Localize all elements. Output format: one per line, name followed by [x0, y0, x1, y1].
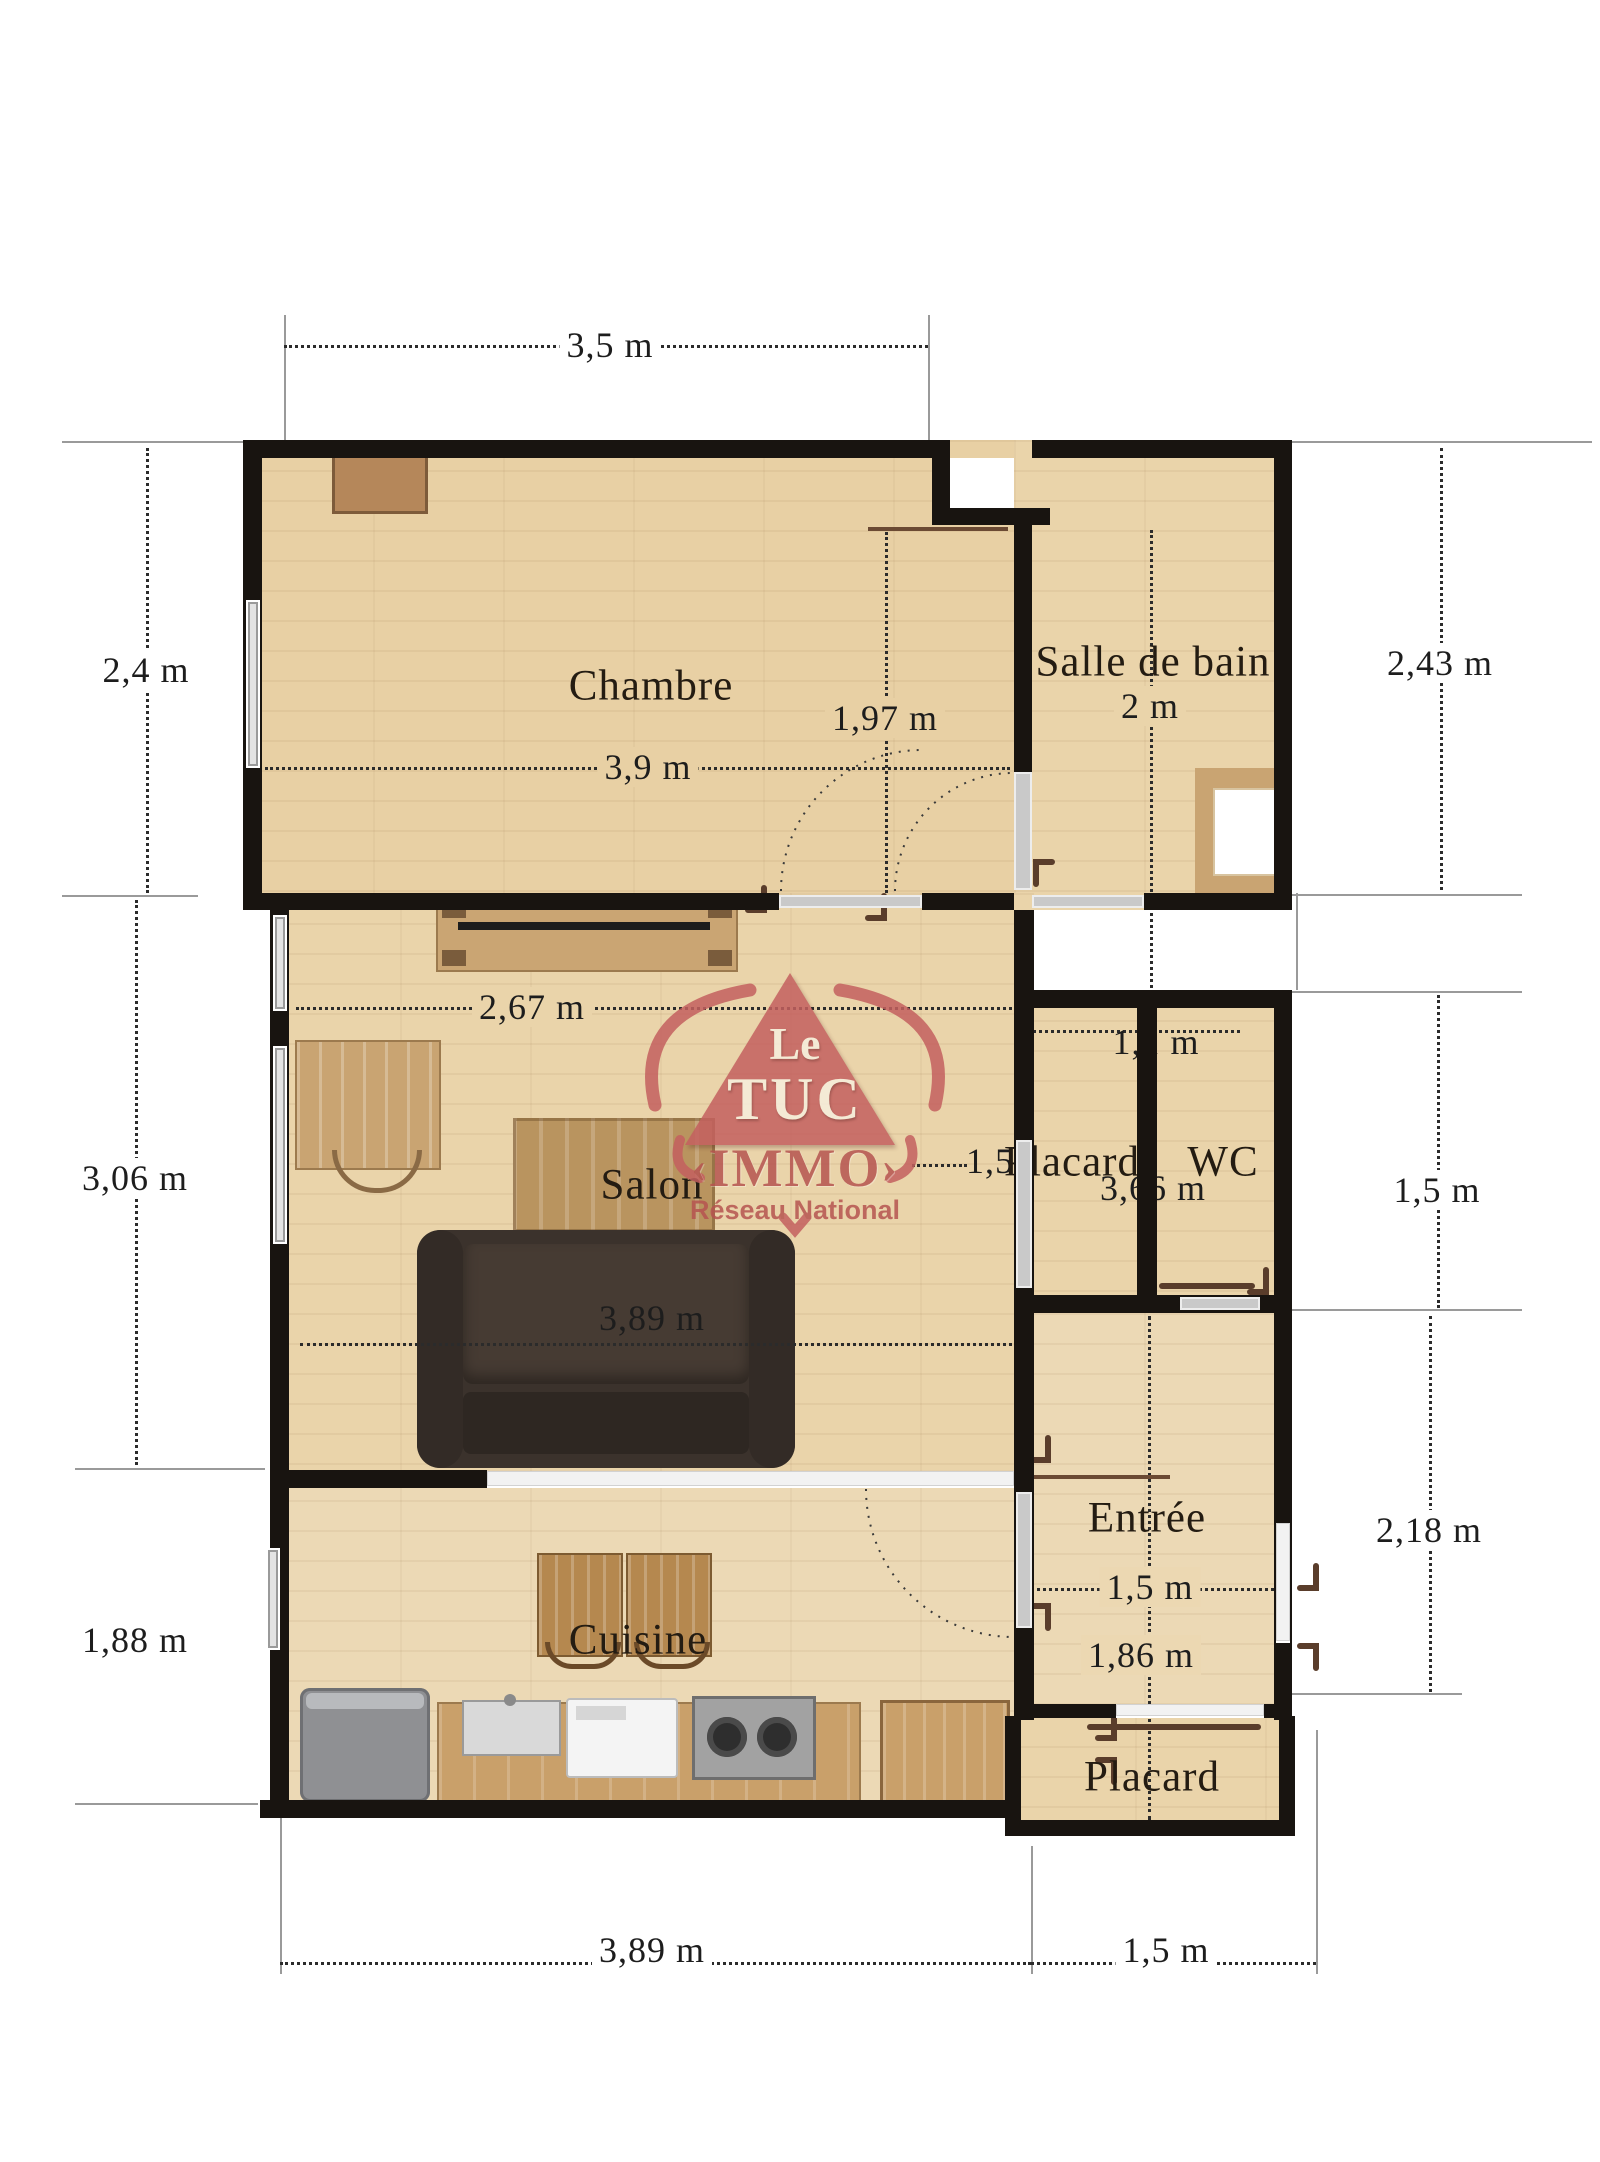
dim-line-wc-height-right	[1437, 995, 1440, 1308]
dim-bottom-left-width: 3,89 m	[592, 1930, 712, 1970]
wall-wc-right	[1274, 990, 1292, 1313]
room-label-wc: WC	[1187, 1141, 1258, 1184]
fridge-top	[306, 1693, 424, 1709]
burner	[757, 1717, 797, 1757]
extent-tick	[75, 1468, 265, 1470]
window-chambre-left	[246, 600, 260, 768]
extent-tick	[62, 441, 243, 443]
extent-line	[1031, 1846, 1033, 1974]
extent-tick	[1292, 441, 1592, 443]
window-salon-left-upper	[273, 915, 287, 1011]
floor-plan-canvas: 3,5 m 2,4 m 2,43 m 1,97 m 3,9 m 2 m 2,67…	[0, 0, 1600, 2162]
wall-placard-bas-right	[1279, 1716, 1295, 1824]
room-label-placard-bas: Placard	[1084, 1756, 1220, 1799]
wall-notch-horizontal	[932, 508, 1050, 525]
room-label-chambre: Chambre	[569, 665, 734, 708]
wall-sdb-bottom	[1144, 893, 1292, 910]
door-hook	[1300, 1646, 1316, 1668]
door-chambre-salon	[779, 895, 922, 908]
extent-line	[284, 315, 286, 443]
room-label-cuisine: Cuisine	[569, 1619, 707, 1662]
dim-chambre-inner-vertical: 1,97 m	[825, 698, 945, 738]
wall-placard-bas-bottom	[1005, 1820, 1295, 1836]
extent-tick	[1292, 894, 1522, 896]
wall-sdb-left	[1014, 508, 1032, 772]
logo-tagline: Réseau National	[625, 1195, 965, 1226]
bathtub-basin	[1213, 788, 1281, 876]
logo-word-immo: ‹IMMO›	[625, 1137, 965, 1199]
extent-line	[1296, 893, 1298, 990]
extent-line	[928, 315, 930, 443]
void-notch	[950, 458, 1014, 510]
dim-entree-height-right: 2,18 m	[1369, 1510, 1489, 1550]
sofa-armrest-left	[417, 1230, 463, 1468]
dim-entree-width: 1,5 m	[1099, 1567, 1200, 1607]
dim-line-sdb-inner	[1150, 530, 1153, 988]
nightstand	[332, 452, 428, 514]
sofa-armrest-right	[749, 1230, 795, 1468]
dim-line-entree-height-right	[1429, 1316, 1432, 1692]
dim-line-salon-lower-width	[300, 1343, 1012, 1346]
wall-salon-cuisine	[270, 1470, 487, 1488]
dishwasher	[566, 1698, 678, 1778]
window-cuisine-left	[266, 1548, 280, 1650]
room-label-salle-de-bain: Salle de bain	[1035, 641, 1270, 684]
extent-tick	[75, 1803, 258, 1805]
dim-sdb-height: 2,43 m	[1380, 643, 1500, 683]
door-sdb-left	[1014, 772, 1032, 890]
dishwasher-panel	[576, 1706, 626, 1720]
tv-stand-pad	[442, 950, 466, 966]
fridge	[300, 1688, 430, 1802]
extent-tick	[1292, 1309, 1522, 1311]
extent-tick	[1292, 991, 1522, 993]
room-label-entree: Entrée	[1088, 1497, 1206, 1540]
dim-cuisine-height: 1,88 m	[75, 1620, 195, 1660]
window-salon-left-lower	[273, 1046, 287, 1244]
extent-line	[1316, 1730, 1318, 1974]
tv-screen	[458, 922, 710, 930]
wall-entree-bottom-left	[1014, 1704, 1116, 1718]
dim-salon-upper-width: 2,67 m	[472, 987, 592, 1027]
logo-word-le: Le	[625, 1017, 965, 1070]
logo-bracket-left: ‹	[691, 1141, 708, 1192]
dim-entree-inner-height: 1,86 m	[1081, 1635, 1201, 1675]
door-salon-placard	[1016, 1140, 1032, 1288]
door-wc	[1180, 1297, 1260, 1310]
dim-wc-height-right: 1,5 m	[1386, 1170, 1487, 1210]
logo-word-tuc: TUC	[625, 1065, 965, 1134]
kitchen-table	[880, 1700, 1010, 1804]
opening-salon-cuisine	[487, 1471, 1014, 1486]
entrance-door	[1276, 1523, 1290, 1641]
void-between-sdb-wc	[1032, 910, 1292, 990]
door-entree-placard	[1116, 1704, 1264, 1716]
wall-chambre-bottom-right	[922, 893, 1014, 910]
wall-cuisine-bottom	[260, 1800, 1014, 1818]
dim-bottom-right-width: 1,5 m	[1115, 1930, 1216, 1970]
extent-tick	[62, 895, 198, 897]
wall-entree-right	[1274, 1313, 1292, 1720]
dim-top-width: 3,5 m	[559, 325, 660, 365]
agency-logo: Le TUC ‹IMMO› Réseau National	[625, 955, 965, 1245]
wall-placard-wc-divider	[1137, 990, 1157, 1313]
dim-chambre-height: 2,4 m	[95, 650, 196, 690]
door-sdb-bottom	[1032, 895, 1144, 908]
dim-sdb-inner: 2 m	[1114, 686, 1186, 726]
dim-chambre-inner-width: 3,9 m	[597, 747, 698, 787]
faucet	[504, 1694, 516, 1706]
wall-chambre-bottom-left	[243, 893, 779, 910]
wall-sdb-right	[1274, 440, 1292, 910]
extent-line	[280, 1818, 282, 1974]
logo-word-immo-text: IMMO	[709, 1138, 882, 1198]
wall-chambre-top	[243, 440, 950, 458]
sofa-back	[463, 1392, 749, 1454]
dim-salon-height: 3,06 m	[75, 1158, 195, 1198]
kitchen-sink	[462, 1700, 561, 1756]
stove	[692, 1696, 816, 1780]
dim-salon-lower-width: 3,89 m	[592, 1298, 712, 1338]
logo-bracket-right: ›	[881, 1141, 898, 1192]
burner	[707, 1717, 747, 1757]
extent-tick	[1292, 1693, 1462, 1695]
sofa	[417, 1230, 795, 1468]
wall-sdb-top	[1032, 440, 1292, 458]
door-hook	[1300, 1566, 1316, 1588]
door-salon-entree	[1016, 1492, 1032, 1628]
